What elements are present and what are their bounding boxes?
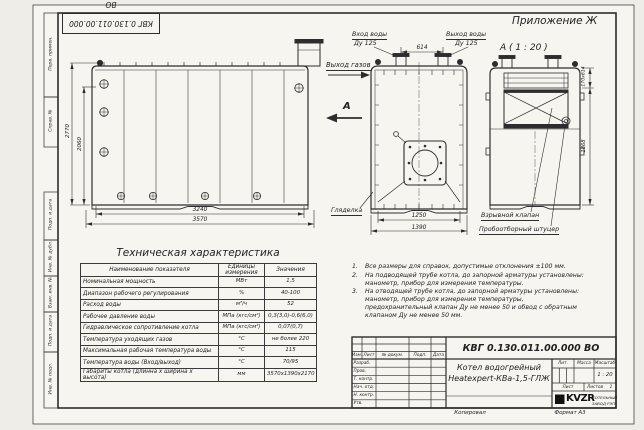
spec-unit: МПа (кгс/см²) — [219, 311, 265, 323]
product-name-line1: Котел водогрейный — [446, 363, 552, 372]
list-item: 2. На подводящей трубе котла, до запорно… — [352, 272, 592, 288]
water-inlet-dn: Ду 125 — [354, 40, 377, 47]
tb-role-nkontr: Н. контр. — [354, 393, 375, 398]
list-item: 1. Все размеры для справок, допустимые о… — [352, 263, 592, 271]
table-row: Максимальная рабочая температура воды°С1… — [81, 345, 317, 357]
product-name-line2: Heatexpert-КВа-1,5-ГЛЖ — [446, 374, 552, 383]
tb-sheets-label: Листов — [584, 385, 606, 390]
copied-label: Копировал — [440, 410, 500, 416]
list-item: 3. На отводящей трубе котла, до запорной… — [352, 288, 592, 319]
spec-value: 115 — [265, 345, 317, 357]
tb-role-tkontr: Т. контр. — [354, 377, 374, 382]
spec-name: Диапазон рабочего регулирования — [81, 288, 219, 300]
spec-unit: МПа (кгс/см²) — [219, 322, 265, 334]
water-outlet-label: Выход воды — [446, 31, 486, 40]
spec-unit: °С — [219, 334, 265, 346]
spec-name: Максимальная рабочая температура воды — [81, 345, 219, 357]
tb-scale-value: 1 : 20 — [594, 372, 616, 378]
spec-value: 70/95 — [265, 357, 317, 369]
table-row: Диапазон рабочего регулирования%40-100 — [81, 288, 317, 300]
frame-label-inv-podl: Инв. № подл. — [49, 351, 54, 407]
tb-role-razrab: Разраб. — [354, 361, 371, 366]
dim-614: 614 — [408, 45, 436, 51]
water-outlet-dn: Ду 125 — [455, 40, 478, 47]
note-number: 1. — [352, 263, 365, 271]
spec-header-row: Наименование показателя Единицы измерени… — [81, 264, 317, 277]
frame-label-sprav-no: Справ. № — [49, 96, 54, 146]
spec-unit: °С — [219, 357, 265, 369]
table-row: Гидравлическое сопротивление котлаМПа (к… — [81, 322, 317, 334]
company-name-line1: КОТЕЛЬНЫЙ — [592, 395, 617, 400]
water-inlet-label: Вход воды — [352, 31, 387, 40]
spec-table: Наименование показателя Единицы измерени… — [80, 263, 317, 382]
dim-3240: 3240 — [186, 207, 214, 213]
tb-role-prov: Пров. — [354, 369, 367, 374]
spec-value: 3570х1390х2170 — [265, 368, 317, 381]
sampling-fitting-label: Пробоотборный штуцер — [479, 226, 559, 235]
spec-unit: мм — [219, 368, 265, 381]
tb-col-dokum: № докум. — [376, 353, 409, 358]
spec-name: Рабочее давление воды — [81, 311, 219, 323]
spec-value: 1,5 — [265, 276, 317, 288]
spec-value: 0,3(3,0)-0,6(6,0) — [265, 311, 317, 323]
gas-outlet-label: Выход газов — [326, 61, 371, 71]
spec-header-value: Значения — [265, 264, 317, 277]
table-row: Температура уходящих газов°Сне более 220 — [81, 334, 317, 346]
dim-1390: 1390 — [405, 225, 433, 231]
spec-name: Номинальная мощность — [81, 276, 219, 288]
tb-sheet-label: Лист — [552, 385, 584, 390]
company-name-line2: ЗАВОД РЭП — [592, 401, 615, 406]
titleblock-designation: КВГ 0.130.011.00.000 ВО — [446, 343, 616, 354]
tb-role-utv: Утв. — [354, 401, 363, 406]
spec-header-unit: Единицы измерения — [219, 264, 265, 277]
spec-value: 52 — [265, 299, 317, 311]
detail-view-label: А ( 1 : 20 ) — [500, 43, 548, 53]
spec-name: Температура уходящих газов — [81, 334, 219, 346]
spec-table-title: Техническая характеристика — [80, 247, 316, 259]
frame-label-vzam-inv: Взам. инв. № — [49, 275, 54, 311]
frame-label-podp-data-2: Подп. и дата — [49, 311, 54, 351]
notes-list: 1. Все размеры для справок, допустимые о… — [352, 263, 592, 320]
tb-col-list: Лист — [362, 353, 376, 358]
spec-header-name: Наименование показателя — [81, 264, 219, 277]
dim-1868: 1868 — [581, 126, 587, 166]
tb-sheets-value: 1 — [606, 385, 616, 390]
dim-2770: 2770 — [65, 111, 71, 151]
spec-value: не более 220 — [265, 334, 317, 346]
frame-label-inv-dubl: Инв. № дубл. — [49, 239, 54, 275]
spec-name: Габариты котла (длинна х ширина х высота… — [81, 368, 219, 381]
spec-unit: м³/ч — [219, 299, 265, 311]
tb-col-izm: Изм. — [352, 353, 362, 358]
top-designation-box: КВГ 0.130.011.00.000 ВО — [62, 13, 160, 34]
explosion-valve-label: Взрывной клапан — [481, 212, 539, 221]
tb-role-nachotd: Нач. отд. — [354, 385, 375, 390]
spec-name: Расход воды — [81, 299, 219, 311]
dim-1250: 1250 — [405, 213, 433, 219]
tb-scale-label: Масштаб — [594, 361, 616, 366]
table-row: Рабочее давление водыМПа (кгс/см²)0,3(3,… — [81, 311, 317, 323]
spec-unit: МВт — [219, 276, 265, 288]
view-arrow-label: А — [343, 101, 351, 112]
tb-col-podp: Подп. — [409, 353, 431, 358]
frame-label-podp-data-1: Подп. и дата — [49, 191, 54, 239]
sight-glass-label: Гляделка — [331, 207, 362, 216]
note-text: На отводящей трубе котла, до запорной ар… — [365, 288, 592, 319]
tb-lit-label: Лит. — [552, 361, 574, 366]
format-label: Формат А3 — [540, 410, 600, 416]
table-row: Расход водым³/ч52 — [81, 299, 317, 311]
spec-value: 40-100 — [265, 288, 317, 300]
spec-name: Температура воды (Вход/выход) — [81, 357, 219, 369]
dim-2060: 2060 — [77, 124, 83, 164]
kvzr-logo: KVZR — [566, 393, 594, 404]
note-number: 2. — [352, 272, 365, 288]
spec-name: Гидравлическое сопротивление котла — [81, 322, 219, 334]
spec-unit: °С — [219, 345, 265, 357]
table-row: Габариты котла (длинна х ширина х высота… — [81, 368, 317, 381]
frame-label-perv-primen: Перв. примен. — [49, 12, 54, 96]
spec-value: 0,07(0,7) — [265, 322, 317, 334]
appendix-label: Приложение Ж — [512, 15, 597, 27]
tb-mass-label: Масса — [574, 361, 594, 366]
dim-170x614: 170х614 — [582, 57, 587, 97]
note-number: 3. — [352, 288, 365, 319]
tb-col-data: Дата — [431, 353, 446, 358]
drawing-sheet: Перв. примен. Справ. № Подп. и дата Инв.… — [0, 0, 644, 430]
dim-3570: 3570 — [186, 217, 214, 223]
note-text: Все размеры для справок, допустимые откл… — [365, 263, 592, 271]
note-text: На подводящей трубе котла, до запорной а… — [365, 272, 592, 288]
spec-unit: % — [219, 288, 265, 300]
table-row: Температура воды (Вход/выход)°С70/95 — [81, 357, 317, 369]
table-row: Номинальная мощностьМВт1,5 — [81, 276, 317, 288]
